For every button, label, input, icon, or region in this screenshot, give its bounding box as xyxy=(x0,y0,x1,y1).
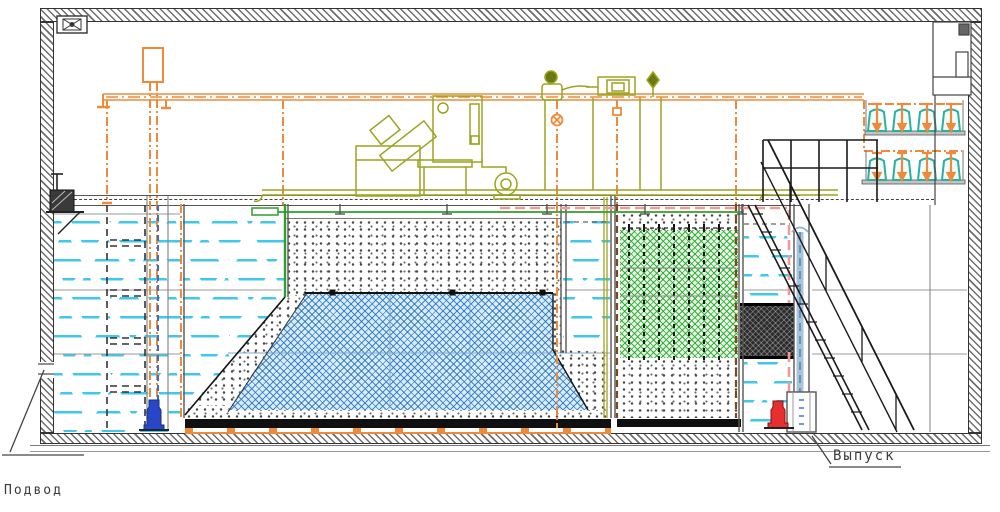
label-leaders xyxy=(2,370,901,467)
expansion-tank xyxy=(143,48,163,82)
tank1-baffle xyxy=(107,205,145,428)
air-drop-pipes-dark xyxy=(617,204,736,418)
sludge-pipe xyxy=(500,208,789,402)
platform-railing xyxy=(763,140,878,202)
tank-partitions xyxy=(184,196,809,432)
mechanical-equipment xyxy=(254,71,838,418)
inlet-penetration xyxy=(38,362,54,378)
air-valve xyxy=(102,108,621,203)
screen-unit xyxy=(356,96,482,196)
inlet-label-line: Подвод xyxy=(4,484,73,498)
far-wall-lines xyxy=(54,205,967,432)
linework-overlay xyxy=(0,0,1000,512)
treated-water-pipe xyxy=(252,204,742,297)
motor-unit xyxy=(586,77,635,95)
diffuser-bells xyxy=(868,110,960,181)
blower-unit xyxy=(542,71,590,100)
wall-mounted-motor xyxy=(46,174,84,234)
inlet-label: Подвод сточных вод на очистку xyxy=(4,457,73,512)
fan-symbol xyxy=(57,16,87,33)
pump-unit xyxy=(482,159,520,199)
inlet-pump xyxy=(139,400,169,430)
outlet-label: Выпуск xyxy=(833,450,896,464)
treatment-plant-section-drawing: Подвод сточных вод на очистку Выпуск xyxy=(0,0,1000,512)
